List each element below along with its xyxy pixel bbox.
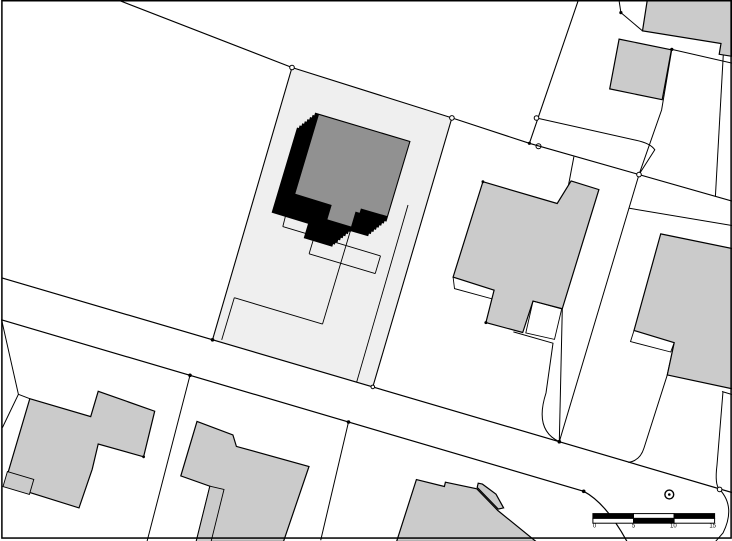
svg-text:15: 15 xyxy=(709,524,716,530)
svg-text:10: 10 xyxy=(670,524,677,530)
